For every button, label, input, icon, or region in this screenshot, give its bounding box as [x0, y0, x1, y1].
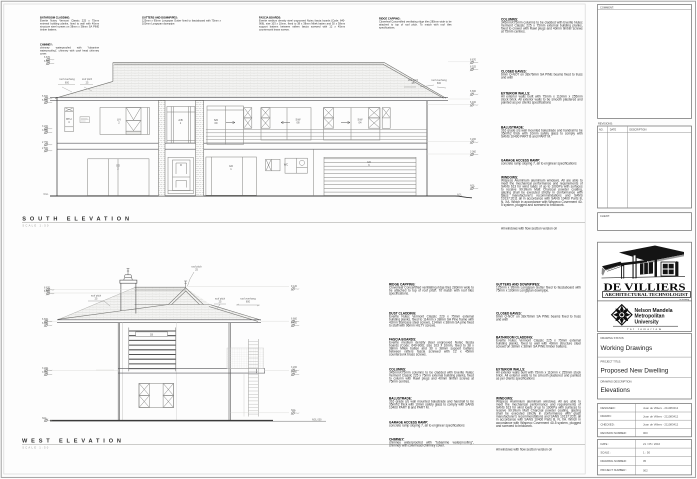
svg-text:ARCHITECTURAL TECHNOLOGIST: ARCHITECTURAL TECHNOLOGIST [605, 293, 689, 297]
svg-text:DRAWN :: DRAWN : [601, 414, 613, 418]
svg-text:000: 000 [643, 431, 648, 435]
svg-text:Juan de Villiers - 211083412: Juan de Villiers - 211083412 [643, 406, 679, 410]
svg-text:002: 002 [643, 468, 648, 472]
svg-text:NO.: NO. [599, 129, 604, 132]
svg-text:DRAWING DESCRIPTION:: DRAWING DESCRIPTION: [601, 379, 633, 383]
svg-text:Proposed New Dwelling: Proposed New Dwelling [601, 367, 669, 374]
svg-text:Working Drawings: Working Drawings [601, 345, 653, 352]
svg-text:DATE :: DATE : [601, 442, 610, 446]
svg-text:DRAWING STATUS:: DRAWING STATUS: [601, 336, 625, 340]
svg-text:1 : 50: 1 : 50 [643, 451, 650, 455]
svg-text:for tomorrow: for tomorrow [628, 327, 663, 331]
svg-text:REVISIONS:: REVISIONS: [598, 121, 613, 125]
svg-text:DESIGNED :: DESIGNED : [601, 406, 617, 410]
svg-text:CHECKED :: CHECKED : [601, 423, 616, 427]
svg-text:COMMENT:: COMMENT: [600, 5, 614, 9]
svg-text:PROJECT NUMBER :: PROJECT NUMBER : [601, 468, 628, 472]
svg-text:DRAWING NUMBER :: DRAWING NUMBER : [601, 459, 628, 463]
svg-text:05: 05 [643, 459, 647, 463]
svg-text:21 / 05 / 2016: 21 / 05 / 2016 [643, 442, 661, 446]
svg-text:DESCRIPTION: DESCRIPTION [629, 129, 646, 132]
svg-text:DATE: DATE [610, 129, 617, 132]
svg-text:CLIENT:: CLIENT: [600, 214, 610, 218]
svg-text:University: University [635, 319, 659, 325]
svg-text:Juan de Villiers - 211083412: Juan de Villiers - 211083412 [643, 414, 679, 418]
svg-text:Elevations: Elevations [601, 387, 631, 394]
svg-text:PROJECT TITLE:: PROJECT TITLE: [601, 359, 622, 363]
svg-text:REVISION NUMBER :: REVISION NUMBER : [601, 431, 628, 435]
svg-text:Juan de Villiers - 211083412: Juan de Villiers - 211083412 [643, 423, 679, 427]
svg-text:SCALE :: SCALE : [601, 450, 612, 454]
